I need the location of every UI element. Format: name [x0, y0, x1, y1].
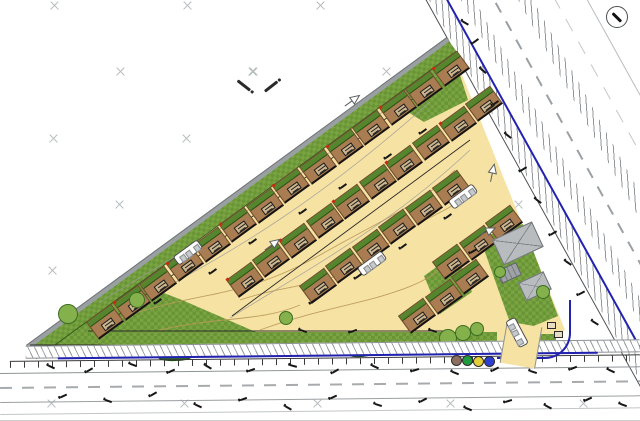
pitch-number-label [367, 123, 382, 137]
pitch-number-label [419, 203, 434, 217]
spot-level-mark [472, 38, 479, 43]
spot-level-mark [535, 198, 542, 203]
spot-level-mark [155, 298, 162, 303]
pitch-number-label [154, 279, 169, 293]
spot-level-mark [520, 166, 527, 171]
spot-level-mark [578, 290, 585, 295]
pitch-number-label [260, 201, 275, 215]
spot-level-mark [355, 273, 362, 278]
service-marker-dot [484, 356, 495, 367]
tree-symbol [279, 311, 293, 325]
pitch-number-label [234, 220, 249, 234]
pitch-number-label [314, 162, 329, 176]
south-road-centerline [0, 380, 640, 388]
caravan-window [376, 254, 385, 263]
spot-level-mark [430, 329, 437, 332]
spot-level-mark [300, 329, 307, 333]
tree-symbol [58, 304, 78, 324]
pitch-number-label [320, 217, 335, 231]
north-arrow-needle [612, 12, 622, 22]
pitch-number-label [207, 240, 222, 254]
service-marker-dot [451, 355, 462, 366]
pitch-number-label [313, 281, 328, 295]
tree-symbol [494, 266, 506, 278]
tree-symbol [470, 322, 484, 336]
pitch-number-label [294, 236, 309, 250]
road-direction-arrow [481, 160, 504, 184]
pitch-number-label [287, 181, 302, 195]
pitch-number-label [413, 311, 428, 325]
pitch-number-label [420, 84, 435, 98]
pitch-number-label [340, 142, 355, 156]
pitch-number-label [480, 100, 495, 114]
tree-symbol [129, 292, 145, 308]
tree-symbol [455, 325, 471, 341]
north-arrow-icon [606, 6, 628, 28]
road-direction-arrow [338, 87, 366, 115]
spot-level-mark [462, 20, 469, 25]
spot-level-mark [592, 320, 599, 325]
spot-level-mark [550, 230, 557, 235]
pitch-number-label [373, 178, 388, 192]
pitch-number-label [393, 103, 408, 117]
tree-symbol [536, 285, 550, 299]
pitch-number-label [347, 197, 362, 211]
south-kerb-line [0, 366, 640, 374]
spot-level-mark [480, 68, 486, 74]
caravan-window [467, 187, 476, 196]
caravan-window [516, 337, 525, 346]
site-plan-canvas [0, 0, 640, 421]
pitch-number-label [466, 272, 481, 286]
spot-level-mark [505, 133, 511, 139]
pitch-number-label [427, 139, 442, 153]
south-road-edge2 [0, 407, 640, 415]
pitch-number-label [447, 64, 462, 78]
spot-level-mark [350, 329, 357, 333]
spot-level-mark [340, 183, 347, 188]
pitch-number-label [101, 317, 116, 331]
pitch-number-label [240, 275, 255, 289]
pitch-number-label [393, 223, 408, 237]
spot-level-mark [565, 260, 572, 265]
spot-level-mark [250, 238, 257, 243]
pitch-number-label [453, 119, 468, 133]
spot-level-mark [400, 243, 407, 248]
service-marker-dot [473, 356, 484, 367]
spot-level-mark [445, 213, 452, 218]
pitch-number-label [439, 292, 454, 306]
pitch-number-label [340, 262, 355, 276]
spot-level-mark [300, 208, 307, 213]
service-marker-dot [462, 355, 473, 366]
pitch-number-label [400, 158, 415, 172]
spot-level-mark [210, 268, 217, 273]
